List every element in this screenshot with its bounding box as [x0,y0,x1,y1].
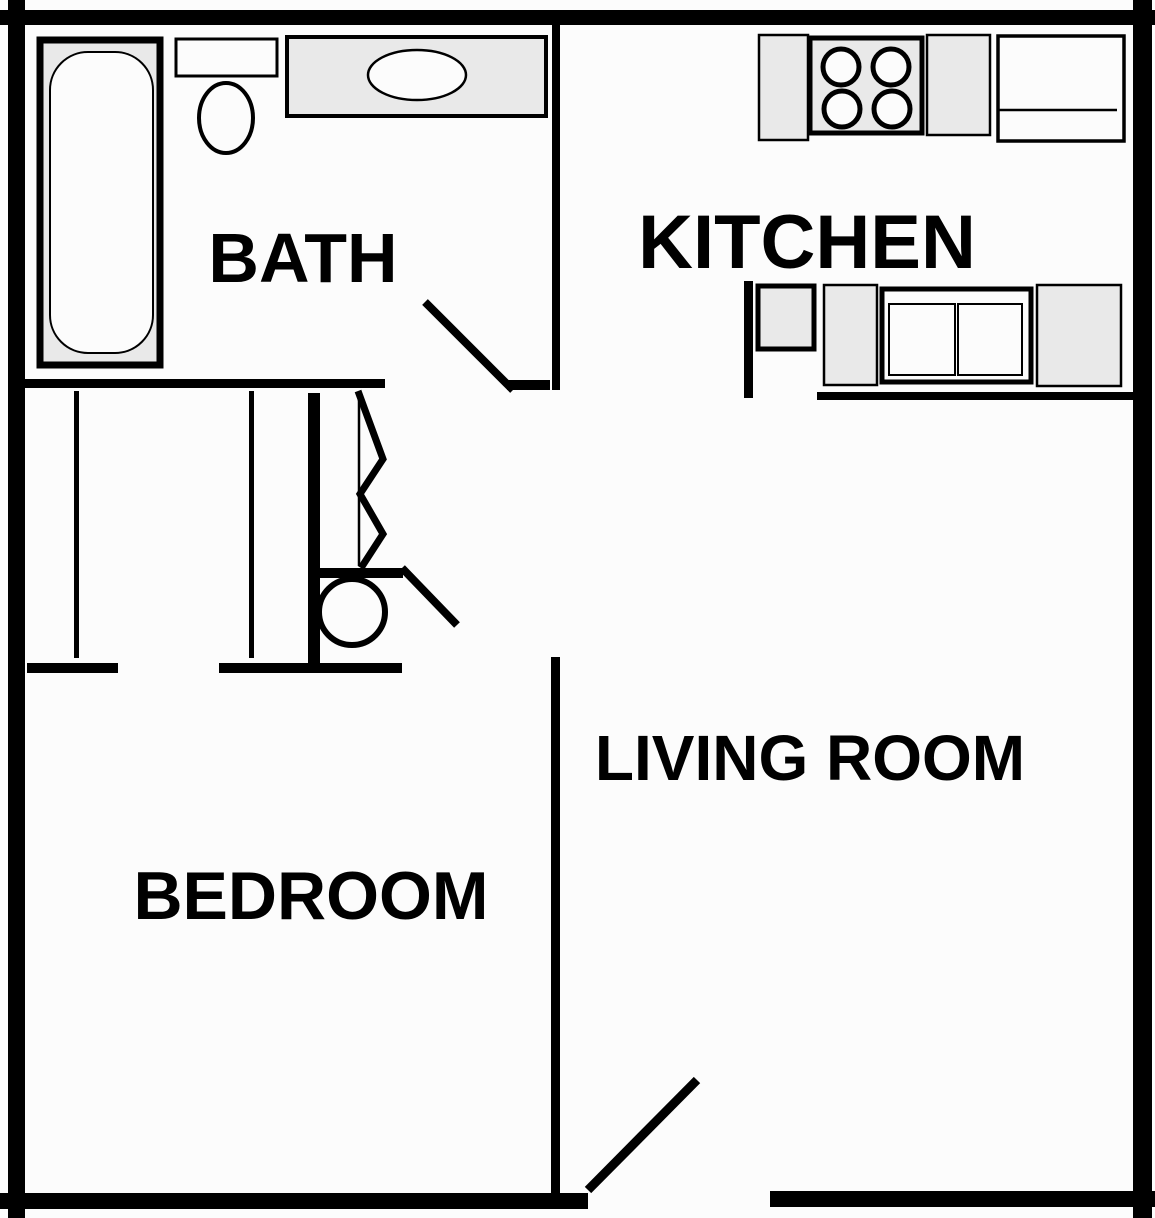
wall-bath-kitchen-divider [552,25,560,390]
wall-left [8,0,25,1218]
refrigerator-icon [998,36,1124,141]
wall-closet-bottom-right [219,663,402,673]
burner-bottom-right [874,91,910,127]
wall-bedroom-living-divider [551,657,560,1209]
floor-background [0,0,1155,1218]
base-cabinet-icon [758,286,814,349]
wall-kitchen-stub [744,281,753,398]
bedroom-label: BEDROOM [133,858,488,934]
bathtub-basin [50,52,153,353]
toilet-bowl-icon [199,83,253,153]
counter-right-of-sink [1037,285,1121,386]
water-heater-icon [319,579,385,645]
wall-bottom-left-segment [0,1193,588,1209]
wall-top [0,10,1155,25]
wall-right [1133,0,1152,1218]
burner-top-right [873,49,909,85]
wall-bottom-right-segment [770,1191,1155,1207]
burner-top-left [823,49,859,85]
counter-left-of-sink [824,285,877,385]
floor-plan: BATH KITCHEN LIVING ROOM BEDROOM [0,0,1155,1218]
burner-bottom-left [824,91,860,127]
toilet-tank-icon [176,39,277,76]
vanity-sink-icon [368,50,466,100]
counter-left-of-stove [759,35,808,140]
wall-closet-bottom-left [27,663,118,673]
wall-bath-bottom [20,379,385,388]
sink-basin-left [889,304,955,375]
wall-kitchen-bottom [817,392,1133,400]
bath-label: BATH [208,219,397,297]
kitchen-label: KITCHEN [638,200,976,285]
counter-right-of-stove [927,35,990,135]
sink-basin-right [958,304,1022,375]
living-room-label: LIVING ROOM [595,722,1025,794]
